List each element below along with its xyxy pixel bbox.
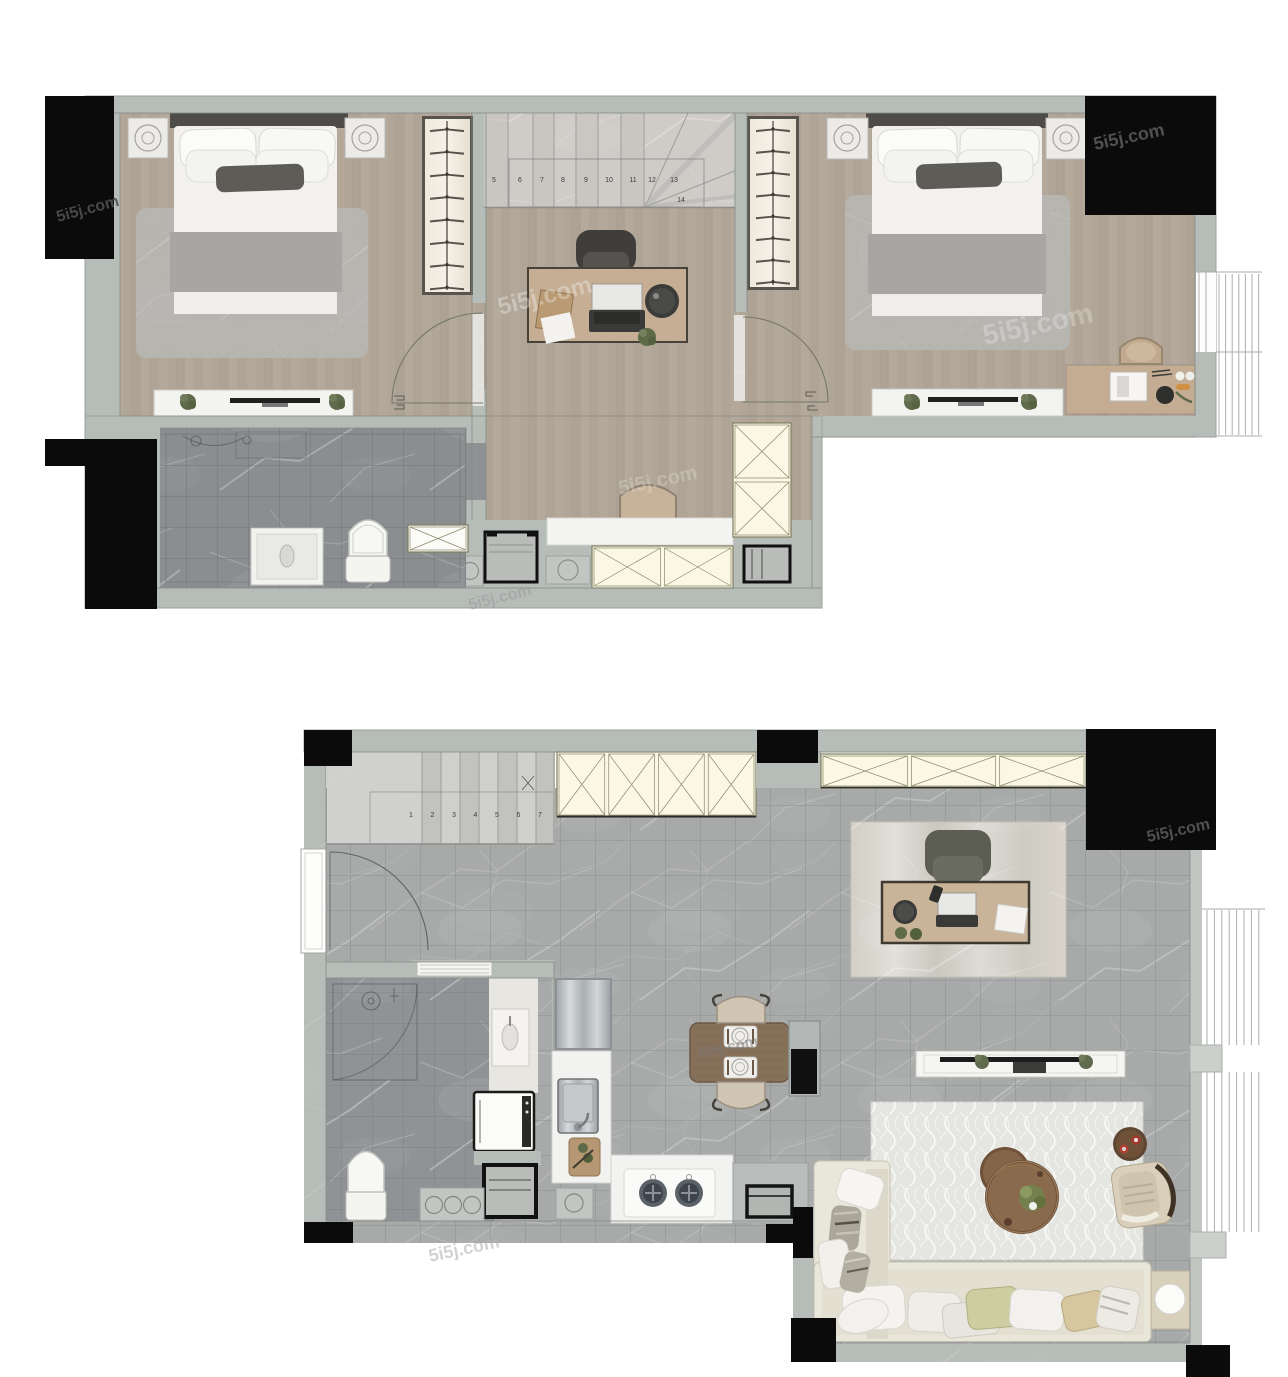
svg-text:14: 14: [677, 197, 685, 204]
svg-text:11: 11: [629, 177, 636, 184]
svg-text:6: 6: [517, 812, 521, 819]
svg-text:5: 5: [495, 812, 499, 819]
svg-text:1: 1: [409, 812, 413, 819]
svg-text:7: 7: [540, 177, 544, 184]
svg-text:3: 3: [452, 812, 456, 819]
svg-text:13: 13: [670, 177, 678, 184]
svg-text:6: 6: [518, 177, 522, 184]
svg-text:10: 10: [605, 177, 613, 184]
svg-text:8: 8: [561, 177, 565, 184]
svg-text:7: 7: [538, 812, 542, 819]
svg-text:4: 4: [474, 812, 478, 819]
svg-text:9: 9: [584, 177, 588, 184]
svg-text:2: 2: [431, 812, 435, 819]
svg-text:12: 12: [648, 177, 656, 184]
svg-text:5: 5: [492, 177, 496, 184]
svg-text:5i5j.com: 5i5j.com: [437, 64, 512, 99]
